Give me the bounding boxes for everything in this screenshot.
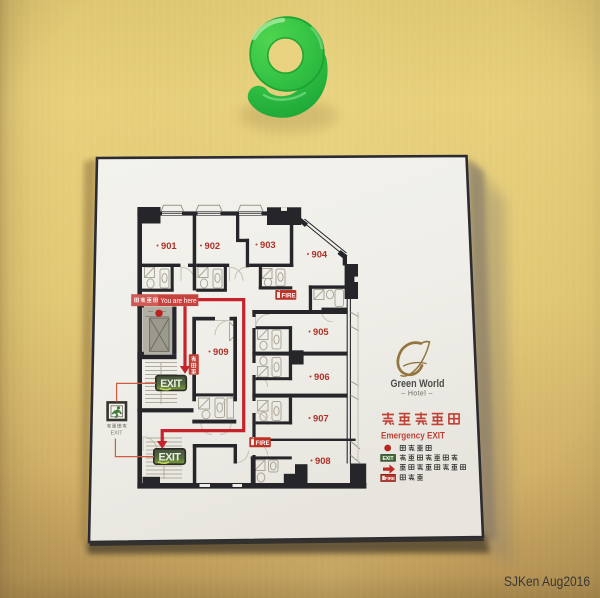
svg-text:SJKen Aug2016: SJKen Aug2016: [504, 573, 590, 589]
svg-text:905: 905: [313, 326, 329, 337]
svg-text:907: 907: [313, 413, 329, 424]
svg-text:EXIT: EXIT: [159, 452, 182, 464]
svg-text:909: 909: [213, 346, 229, 357]
svg-text:906: 906: [314, 371, 330, 382]
svg-text:Emergency EXIT: Emergency EXIT: [381, 430, 445, 441]
svg-text:EXIT: EXIT: [382, 456, 393, 462]
svg-text:– Hotel –: – Hotel –: [401, 391, 433, 398]
svg-text:902: 902: [205, 240, 221, 251]
svg-text:FIRE: FIRE: [385, 476, 395, 481]
svg-text:You are here: You are here: [161, 296, 197, 305]
svg-text:EXIT: EXIT: [160, 378, 183, 390]
svg-text:FIRE: FIRE: [256, 440, 270, 447]
svg-text:903: 903: [260, 239, 276, 250]
svg-text:Green World: Green World: [391, 378, 445, 390]
svg-text:908: 908: [315, 455, 331, 466]
svg-text:904: 904: [312, 249, 328, 260]
svg-text:EXIT: EXIT: [111, 431, 124, 437]
svg-text:901: 901: [161, 240, 177, 251]
svg-text:FIRE: FIRE: [282, 293, 296, 300]
